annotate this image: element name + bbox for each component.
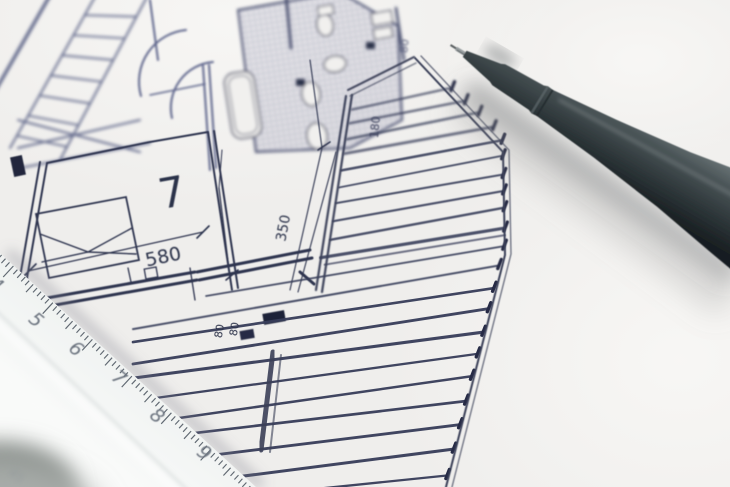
toilet-tank [317,5,333,16]
photo-canvas: 7 580 350 80 180 80 80 456789 45 [0,0,730,487]
fixture-mark [366,42,375,49]
fixture-mark [296,79,305,86]
dimension-label-80-b: 80 [227,321,242,337]
dimension-label-180: 180 [367,115,383,138]
dimension-label-80-top: 80 [397,38,411,53]
shelf [371,10,393,25]
photo-architectural-plan: 7 580 350 80 180 80 80 456789 45 [0,0,730,487]
dimension-label-80-a: 80 [212,323,227,339]
